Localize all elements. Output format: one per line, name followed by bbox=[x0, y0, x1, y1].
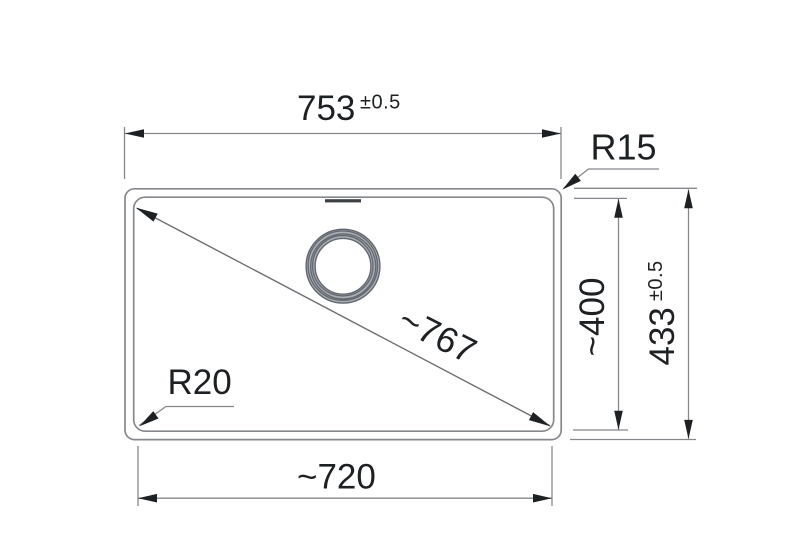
svg-text:±0.5: ±0.5 bbox=[360, 92, 401, 114]
svg-text:R20: R20 bbox=[168, 363, 232, 402]
svg-text:753: 753 bbox=[297, 89, 355, 128]
svg-text:~400: ~400 bbox=[573, 278, 612, 357]
svg-text:R15: R15 bbox=[591, 127, 657, 168]
svg-text:~720: ~720 bbox=[297, 458, 376, 497]
